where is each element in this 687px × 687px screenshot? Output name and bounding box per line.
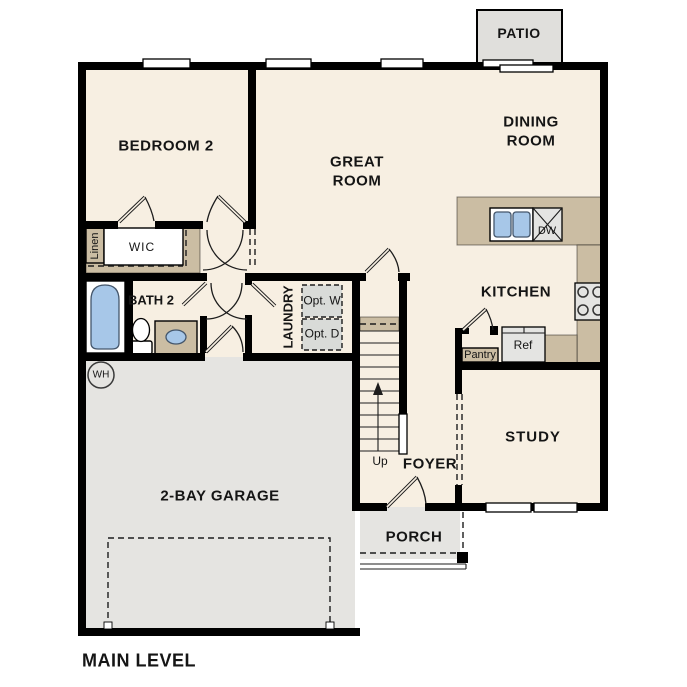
porch-steps (360, 564, 466, 569)
sink-basin-left-icon (494, 212, 511, 237)
fixture-label-ref: Ref (514, 338, 533, 352)
fixture-label-opt-dryer: Opt. D (302, 327, 342, 342)
fixture-label-dishwasher: DW (538, 225, 556, 237)
floor-plan-drawing (0, 0, 687, 687)
room-label-porch: PORCH (386, 529, 443, 546)
room-label-bedroom2: BEDROOM 2 (118, 138, 213, 155)
page-title: MAIN LEVEL (82, 651, 196, 672)
window-study-1 (486, 503, 531, 512)
bathtub-icon (91, 285, 119, 349)
kitchen-bottom-counter (545, 335, 577, 365)
stair-railing (399, 414, 407, 454)
room-label-kitchen: KITCHEN (481, 284, 551, 301)
room-label-bath2: BATH 2 (128, 293, 174, 308)
fixture-label-opt-washer: Opt. W (302, 294, 342, 309)
garage-door-jamb-left (104, 622, 112, 629)
room-label-laundry: LAUNDRY (281, 285, 296, 348)
room-label-study: STUDY (505, 429, 561, 446)
fixture-label-linen: Linen (89, 233, 101, 260)
room-label-wic: WIC (129, 240, 155, 254)
window-bedroom2 (143, 59, 190, 68)
patio-slider-panel-2 (500, 65, 553, 72)
room-label-great-room: GREAT ROOM (315, 153, 399, 191)
floor-fills (82, 10, 604, 630)
window-great-room-1 (266, 59, 311, 68)
window-great-room-2 (381, 59, 423, 68)
fixture-label-up: Up (372, 454, 387, 468)
room-label-garage: 2-BAY GARAGE (160, 488, 280, 507)
floor-plan-page: PATIO BEDROOM 2 GREAT ROOM DINING ROOM K… (0, 0, 687, 687)
toilet-tank-icon (130, 341, 152, 354)
room-label-foyer: FOYER (403, 456, 457, 473)
room-label-dining-room: DINING ROOM (489, 113, 573, 151)
fixture-label-water-heater: WH (93, 370, 110, 381)
garage-door-jamb-right (326, 622, 334, 629)
room-label-patio: PATIO (497, 25, 540, 41)
sink-basin-right-icon (513, 212, 530, 237)
toilet-bowl-icon (133, 319, 150, 342)
window-study-2 (534, 503, 577, 512)
fixture-label-pantry: Pantry (464, 349, 496, 361)
bath-sink-icon (166, 330, 186, 344)
